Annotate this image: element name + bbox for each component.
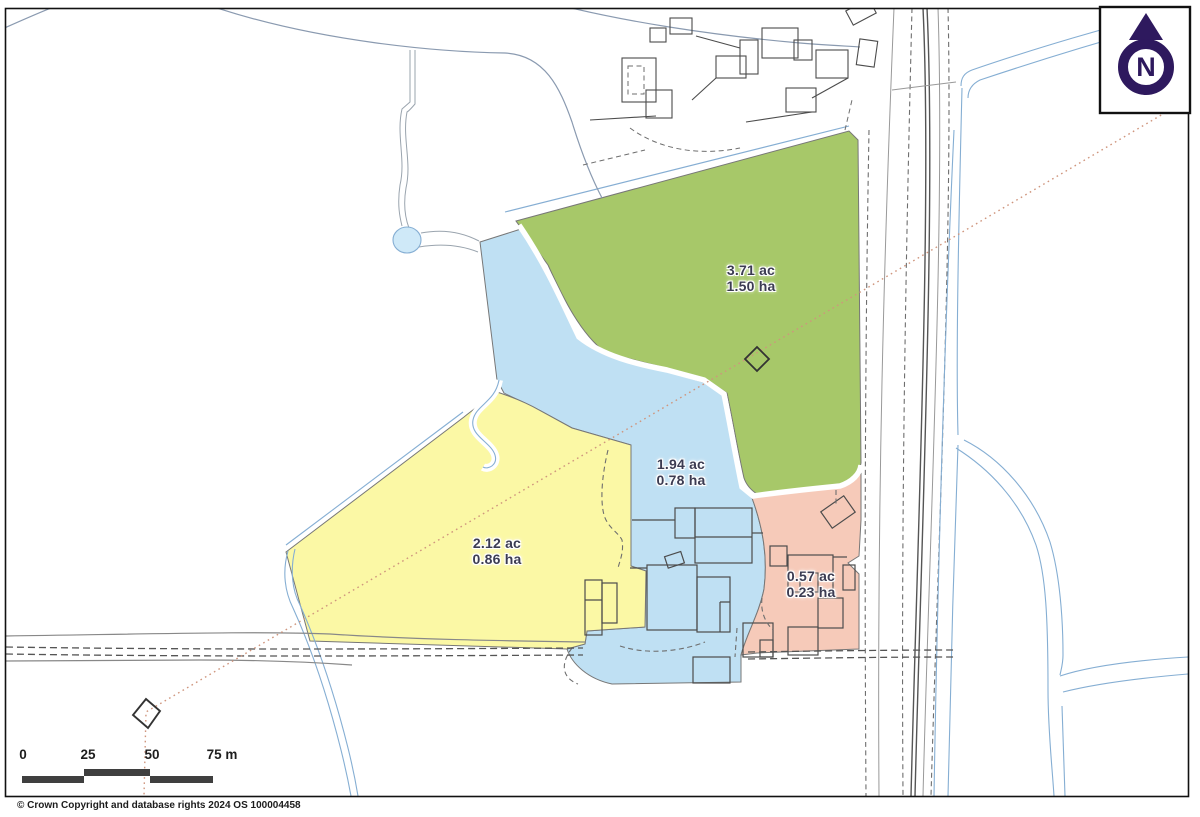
road-edge (6, 660, 352, 665)
roadside-drains (934, 6, 1194, 796)
buildings-north (590, 0, 878, 122)
building (816, 50, 848, 78)
building (740, 40, 758, 74)
north-letter: N (1136, 52, 1156, 82)
building (846, 0, 876, 25)
scale-tick-50: 50 (144, 747, 159, 762)
building (646, 90, 672, 118)
dashed-line (583, 150, 645, 165)
parcel-hectares: 1.50 ha (727, 278, 776, 294)
dashed-line (845, 100, 852, 130)
parcel-label-green: 3.71 ac 1.50 ha (727, 262, 776, 294)
parcel-acres: 0.57 ac (787, 568, 836, 584)
parcel-hectares: 0.86 ha (473, 551, 522, 567)
scale-segment (22, 776, 84, 783)
parcel-acres: 3.71 ac (727, 262, 776, 278)
building (762, 28, 798, 58)
parcel-label-yellow: 2.12 ac 0.86 ha (473, 535, 522, 567)
drain-line (1062, 706, 1065, 796)
parcels (286, 131, 861, 684)
fence-line (696, 36, 740, 48)
scale-tick-25: 25 (80, 747, 95, 762)
drain-link (421, 231, 479, 241)
road-line-dashed (865, 130, 869, 796)
parcel-label-blue: 1.94 ac 0.78 ha (657, 456, 706, 488)
map-drawing: N (0, 0, 1200, 817)
boundary-curve (0, 6, 56, 30)
drain-line (948, 445, 958, 796)
scale-bar (22, 769, 213, 783)
parcel-hectares: 0.78 ha (657, 472, 706, 488)
site-plan-map: N 3.71 ac 1.50 ha 1.94 ac 0.78 ha 2.12 a… (0, 0, 1200, 817)
parcel-label-pink: 0.57 ac 0.23 ha (787, 568, 836, 600)
drain-line (1063, 674, 1188, 692)
scale-segment (150, 776, 213, 783)
north-arrow: N (1100, 7, 1190, 113)
drain-link (419, 245, 478, 252)
track-dashed (748, 657, 956, 659)
scale-segment (84, 769, 150, 776)
road-line (879, 8, 894, 796)
farm-drain (399, 50, 479, 252)
dashed-line (630, 128, 740, 151)
scale-tick-0: 0 (19, 747, 27, 762)
drain-line (1060, 657, 1188, 676)
scale-tick-75: 75 m (207, 747, 238, 762)
drain-line (956, 448, 1054, 796)
copyright-notice: © Crown Copyright and database rights 20… (17, 800, 301, 811)
road-line-dashed (903, 8, 912, 796)
building (856, 39, 877, 67)
survey-station-marker (133, 699, 160, 728)
road-corridor (865, 8, 956, 796)
building (650, 28, 666, 42)
track-dashed (6, 654, 583, 656)
fence-line (692, 78, 716, 100)
fence-line (746, 112, 812, 122)
drain-line (957, 88, 962, 435)
building (670, 18, 692, 34)
parcel-acres: 1.94 ac (657, 456, 706, 472)
building (622, 58, 656, 102)
drain-line (964, 440, 1063, 675)
pond (393, 227, 421, 253)
building (716, 56, 746, 78)
parcel-acres: 2.12 ac (473, 535, 522, 551)
parcel-hectares: 0.23 ha (787, 584, 836, 600)
road-edge-link (892, 82, 956, 90)
building-dashed (628, 66, 644, 94)
building (786, 88, 816, 112)
fence-line (812, 78, 848, 98)
